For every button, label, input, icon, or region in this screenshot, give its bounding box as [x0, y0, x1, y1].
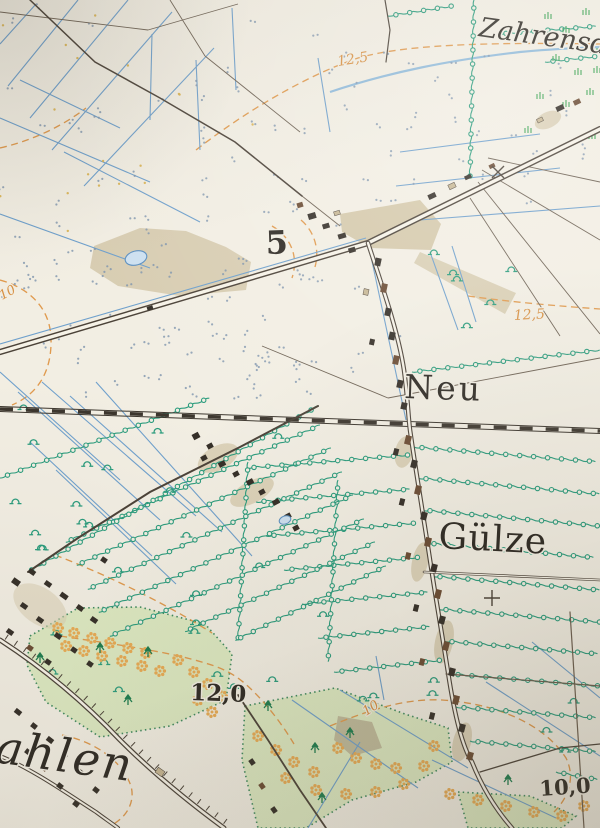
hedgerow-ring	[283, 467, 287, 471]
wet-dot	[130, 283, 132, 285]
elevation-label-12-0: 12,0	[190, 679, 247, 708]
bush-dot	[295, 764, 298, 767]
hedgerow-ring	[316, 538, 320, 542]
wet-dot	[90, 250, 92, 252]
building	[307, 212, 316, 220]
hedgerow-ring	[191, 567, 195, 571]
bush-dot	[397, 763, 400, 766]
hedgerow-ring	[238, 608, 242, 612]
bush-dot	[435, 748, 438, 751]
railway-dashes	[0, 409, 600, 431]
hedgerow-ring	[298, 432, 302, 436]
building	[14, 708, 23, 716]
bush-dot	[537, 810, 540, 813]
building	[413, 604, 420, 612]
bush-dot	[375, 763, 378, 766]
hedgerow-ring	[116, 573, 120, 577]
wet-dot	[299, 273, 301, 275]
bush-dot	[140, 653, 143, 656]
wet-dot	[394, 199, 396, 201]
wet-dot	[237, 90, 239, 92]
bush-dot	[123, 663, 126, 666]
wet-dot	[583, 153, 585, 155]
hedgerow-ring	[577, 490, 581, 494]
grass-mark	[587, 88, 593, 95]
wet-dot	[114, 380, 116, 382]
wet-dot	[406, 128, 408, 130]
hedgerow-ring	[486, 611, 490, 615]
wet-dot	[157, 100, 159, 102]
building	[232, 470, 240, 477]
wet-dot	[130, 347, 132, 349]
wet-dot	[254, 21, 256, 23]
hedgerow-ring	[239, 580, 243, 584]
hedgerow-ring	[322, 600, 326, 604]
hedgerow-ring	[242, 524, 246, 528]
bush-dot	[143, 656, 146, 659]
hedgerow-ring	[565, 57, 569, 61]
hedgerow-ring	[462, 705, 466, 709]
bush-dot	[188, 672, 191, 675]
hedgerow-ring	[471, 48, 475, 52]
hedgerow-ring	[369, 525, 373, 529]
wet-dot	[148, 232, 150, 234]
wet-dot	[550, 94, 552, 96]
hedgerow-ring	[468, 160, 472, 164]
hedgerow-ring	[238, 594, 242, 598]
wet-dot	[532, 153, 534, 155]
bush-dot	[136, 666, 139, 669]
bush-dot	[427, 764, 430, 767]
wet-dot	[274, 125, 276, 127]
wet-dot	[189, 385, 191, 387]
wet-dot	[305, 180, 307, 182]
hedgerow-ring	[575, 650, 579, 654]
hedgerow-ring	[271, 473, 275, 477]
hedgerow-ring	[515, 358, 519, 362]
bush-dot	[437, 744, 440, 747]
wet-dot	[109, 314, 111, 316]
wet-dot	[45, 346, 47, 348]
wet-meadow-dots	[0, 3, 586, 399]
hedgerow-ring	[260, 450, 264, 454]
bush-dot	[59, 630, 62, 633]
bush-dot	[398, 780, 401, 783]
hedgerow-ring	[437, 658, 441, 662]
bush-dot	[481, 798, 484, 801]
hedgerow-ring	[318, 495, 322, 499]
hedgerow-ring	[407, 627, 411, 631]
hedgerow-ring	[131, 537, 135, 541]
building	[296, 202, 303, 209]
wet-dot	[356, 82, 358, 84]
bush-dot	[345, 793, 348, 796]
bush-dot	[556, 812, 559, 815]
hedgerow-ring	[326, 654, 330, 658]
wet-dot	[296, 208, 298, 210]
meadow-tuft	[70, 502, 82, 507]
wet-dot	[58, 338, 60, 340]
hedgerow-ring	[476, 740, 480, 744]
bush-dot	[370, 760, 373, 763]
wet-dot	[317, 280, 319, 282]
wet-dot	[94, 248, 96, 250]
wet-dot	[202, 137, 204, 139]
wet-dot	[297, 269, 299, 271]
meadow-tuft	[83, 522, 95, 527]
hedgerow-ring	[138, 620, 142, 624]
wet-dot	[134, 217, 136, 219]
bush-dot	[215, 710, 218, 713]
bush-dot	[175, 663, 178, 666]
wet-dot	[110, 268, 112, 270]
wet-dot	[226, 300, 228, 302]
hedgerow-ring	[243, 510, 247, 514]
wet-dot	[69, 324, 71, 326]
hedgerow-ring	[542, 615, 546, 619]
hedgerow-ring	[346, 562, 350, 566]
hedgerow-ring	[405, 592, 409, 596]
building	[59, 592, 68, 601]
bush-dot	[255, 739, 258, 742]
bush-dot	[122, 644, 125, 647]
wet-dot	[261, 357, 263, 359]
bush-dot	[145, 664, 148, 667]
wet-dot	[380, 200, 382, 202]
hedgerow-ring	[449, 4, 453, 8]
bush-dot	[52, 628, 55, 631]
hedgerow-ring	[322, 449, 326, 453]
bush-dot	[136, 662, 139, 665]
wet-dot	[195, 84, 197, 86]
wet-dot	[255, 363, 257, 365]
hedgerow-ring	[411, 521, 415, 525]
bush-dot	[125, 659, 128, 662]
wet-dot	[190, 352, 192, 354]
building	[192, 432, 201, 441]
wet-dot	[249, 374, 251, 376]
wet-dot	[300, 278, 302, 280]
hedgerow-ring	[158, 497, 162, 501]
hedgerow-ring	[104, 579, 108, 583]
bush-dot	[377, 759, 380, 762]
hedgerow-ring	[236, 450, 240, 454]
hedgerow-ring	[91, 585, 95, 589]
bush-dot	[561, 815, 564, 818]
wet-dot	[536, 150, 538, 152]
hedgerow-ring	[444, 607, 448, 611]
bush-dot	[565, 814, 568, 817]
hedgerow-ring	[244, 496, 248, 500]
hedgerow-ring	[182, 514, 186, 518]
wet-dot	[168, 342, 170, 344]
building	[337, 232, 346, 239]
hedgerow-line	[110, 519, 364, 636]
hedgerow-ring	[466, 480, 470, 484]
hedgerow-ring	[252, 597, 256, 601]
speck	[0, 195, 2, 197]
wet-dot	[340, 223, 342, 225]
place-label-neu: Neu	[404, 367, 484, 409]
wet-dot	[158, 378, 160, 380]
meadow-tuft	[180, 532, 192, 537]
wet-dot	[312, 276, 314, 278]
wet-dot	[12, 17, 14, 19]
hedgerow-ring	[330, 584, 334, 588]
hedgerow-ring	[546, 745, 550, 749]
speck	[65, 44, 67, 46]
wet-dot	[143, 341, 145, 343]
hedgerow-ring	[342, 526, 346, 530]
wet-dot	[268, 211, 270, 213]
hedgerow-ring	[350, 457, 354, 461]
building	[419, 658, 426, 666]
wet-dot	[279, 284, 281, 286]
bush-dot	[273, 744, 276, 747]
wet-dot	[140, 271, 142, 273]
hedgerow-ring	[338, 634, 342, 638]
bush-dot	[139, 660, 142, 663]
hedgerow-ring	[324, 635, 328, 639]
hedgerow-ring	[200, 470, 204, 474]
hedgerow-ring	[302, 573, 306, 577]
bush-dot	[421, 760, 424, 763]
bush-dot	[172, 656, 175, 659]
wet-dot	[451, 97, 453, 99]
wet-dot	[414, 116, 416, 118]
hedgerow-ring	[187, 477, 191, 481]
bush-dot	[353, 761, 356, 764]
wet-dot	[102, 275, 104, 277]
wet-dot	[251, 120, 253, 122]
field-path	[446, 674, 600, 686]
wet-dot	[98, 117, 100, 119]
wet-dot	[178, 329, 180, 331]
bush-dot	[129, 650, 132, 653]
bush-dot	[332, 744, 335, 747]
wet-dot	[278, 346, 280, 348]
bush-dot	[377, 766, 380, 769]
bush-dot	[113, 641, 116, 644]
speck	[251, 123, 253, 125]
wet-dot	[19, 236, 21, 238]
hedgerow-ring	[573, 748, 577, 752]
place-label-zahrensdorf: Zahrensd	[476, 12, 600, 61]
wet-dot	[254, 123, 256, 125]
hedgerow-ring	[518, 710, 522, 714]
bush-dot	[172, 660, 175, 663]
wet-dot	[23, 287, 25, 289]
wet-dot	[410, 126, 412, 128]
wet-dot	[413, 178, 415, 180]
bush-dot	[310, 786, 313, 789]
bush-dot	[399, 766, 402, 769]
bush-dot	[95, 636, 98, 639]
hedgerow-ring	[504, 742, 508, 746]
hedgerow-ring	[153, 584, 157, 588]
hedgerow-ring	[353, 549, 357, 553]
bush-dot	[206, 708, 209, 711]
wet-dot	[263, 211, 265, 213]
embankment-tick	[215, 813, 218, 818]
hedgerow-ring	[464, 641, 468, 645]
bush-dot	[52, 624, 55, 627]
bush-dot	[500, 806, 503, 809]
bush-dot	[127, 647, 130, 650]
hedgerow-ring	[352, 632, 356, 636]
bush-dot	[421, 769, 424, 772]
hedgerow-ring	[587, 459, 591, 463]
wet-dot	[346, 108, 348, 110]
wet-dot	[225, 334, 227, 336]
bush-dot	[103, 658, 106, 661]
wet-dot	[526, 202, 528, 204]
meadow-tuft	[152, 428, 164, 433]
wet-dot	[145, 228, 147, 230]
wet-dot	[11, 87, 13, 89]
hedgerow-ring	[595, 524, 599, 528]
hedgerow-ring	[591, 491, 595, 495]
bush-dot	[181, 658, 184, 661]
wet-dot	[80, 349, 82, 351]
hedgerow-ring	[80, 561, 84, 565]
wet-dot	[242, 258, 244, 260]
bush-dot	[279, 748, 282, 751]
wet-dot	[379, 126, 381, 128]
hedgerow-ring	[212, 463, 216, 467]
wet-dot	[274, 129, 276, 131]
hedgerow-ring	[329, 532, 333, 536]
bush-dot	[77, 631, 80, 634]
wet-dot	[27, 286, 29, 288]
bush-dot	[332, 748, 335, 751]
hedgerow-ring	[245, 468, 249, 472]
hedgerow-ring	[334, 514, 338, 518]
bush-dot	[68, 629, 71, 632]
meadow-tuft	[428, 678, 440, 683]
bush-dot	[86, 634, 89, 637]
hedgerow-ring	[589, 651, 593, 655]
bush-dot	[85, 653, 88, 656]
bush-dot	[195, 674, 198, 677]
hedgerow-ring	[469, 132, 473, 136]
bush-dot	[357, 760, 360, 763]
bush-dot	[71, 627, 74, 630]
wet-dot	[2, 186, 4, 188]
wet-dot	[295, 361, 297, 363]
hedgerow-ring	[97, 438, 101, 442]
hedgerow-ring	[58, 453, 62, 457]
bush-dot	[339, 743, 342, 746]
bush-dot	[357, 753, 360, 756]
wet-dot	[92, 25, 94, 27]
bush-dot	[418, 766, 421, 769]
bush-dot	[177, 659, 180, 662]
hedgerow-ring	[380, 629, 384, 633]
wet-dot	[58, 200, 60, 202]
hedgerow-ring	[373, 559, 377, 563]
wet-dot	[27, 274, 29, 276]
wet-dot	[133, 171, 135, 173]
wet-dot	[203, 142, 205, 144]
wet-dot	[354, 288, 356, 290]
hedgerow-ring	[205, 532, 209, 536]
hedgerow-ring	[387, 489, 391, 493]
hedgerow-ring	[207, 502, 211, 506]
bush-dot	[479, 802, 482, 805]
wet-dot	[163, 336, 165, 338]
wet-dot	[257, 355, 259, 357]
hedgerow-ring	[545, 456, 549, 460]
hedgerow-ring	[442, 510, 446, 514]
hedgerow-ring	[393, 628, 397, 632]
wet-dot	[565, 114, 567, 116]
bush-dot	[61, 626, 64, 629]
embankment-tick	[14, 641, 17, 646]
embankment-tick	[5, 635, 8, 640]
wet-dot	[383, 52, 385, 54]
hedgerow-ring	[209, 473, 213, 477]
bush-dot	[89, 632, 92, 635]
bush-dot	[337, 747, 340, 750]
wet-dot	[201, 179, 203, 181]
wet-dot	[106, 265, 108, 267]
hedgerow-ring	[458, 609, 462, 613]
bush-dot	[355, 757, 358, 760]
hedgerow-line	[99, 495, 353, 612]
hedgerow-ring	[166, 578, 170, 582]
bush-dot	[578, 802, 581, 805]
hedgerow-ring	[377, 567, 381, 571]
hedgerow-ring	[553, 520, 557, 524]
wet-dot	[253, 387, 255, 389]
hedgerow-ring	[487, 361, 491, 365]
bush-dot	[55, 622, 58, 625]
wet-dot	[390, 150, 392, 152]
hedgerow-ring	[332, 542, 336, 546]
wet-dot	[78, 127, 80, 129]
bush-dot	[131, 646, 134, 649]
bush-dot	[78, 647, 81, 650]
bush-dot	[122, 648, 125, 651]
wet-dot	[582, 158, 584, 160]
wet-dot	[152, 264, 154, 266]
wet-dot	[331, 69, 333, 71]
bush-dot	[125, 642, 128, 645]
hedgerow-ring	[234, 461, 238, 465]
hedgerow-ring	[66, 547, 70, 551]
hedgerow-ring	[350, 597, 354, 601]
bush-dot	[107, 646, 110, 649]
bush-dot	[528, 808, 531, 811]
bush-dot	[472, 800, 475, 803]
hedgerow-ring	[506, 644, 510, 648]
bush-dot	[191, 675, 194, 678]
hedgerow-ring	[471, 20, 475, 24]
wet-dot	[222, 360, 224, 362]
wet-dot	[310, 393, 312, 395]
bush-dot	[96, 656, 99, 659]
bush-dot	[505, 805, 508, 808]
bush-dot	[139, 669, 142, 672]
hedgerow-ring	[202, 591, 206, 595]
hedgerow-ring	[139, 505, 143, 509]
wet-dot	[353, 86, 355, 88]
speck	[102, 160, 104, 162]
hedgerow-ring	[424, 477, 428, 481]
hedgerow-ring	[473, 362, 477, 366]
bush-dot	[209, 715, 212, 718]
